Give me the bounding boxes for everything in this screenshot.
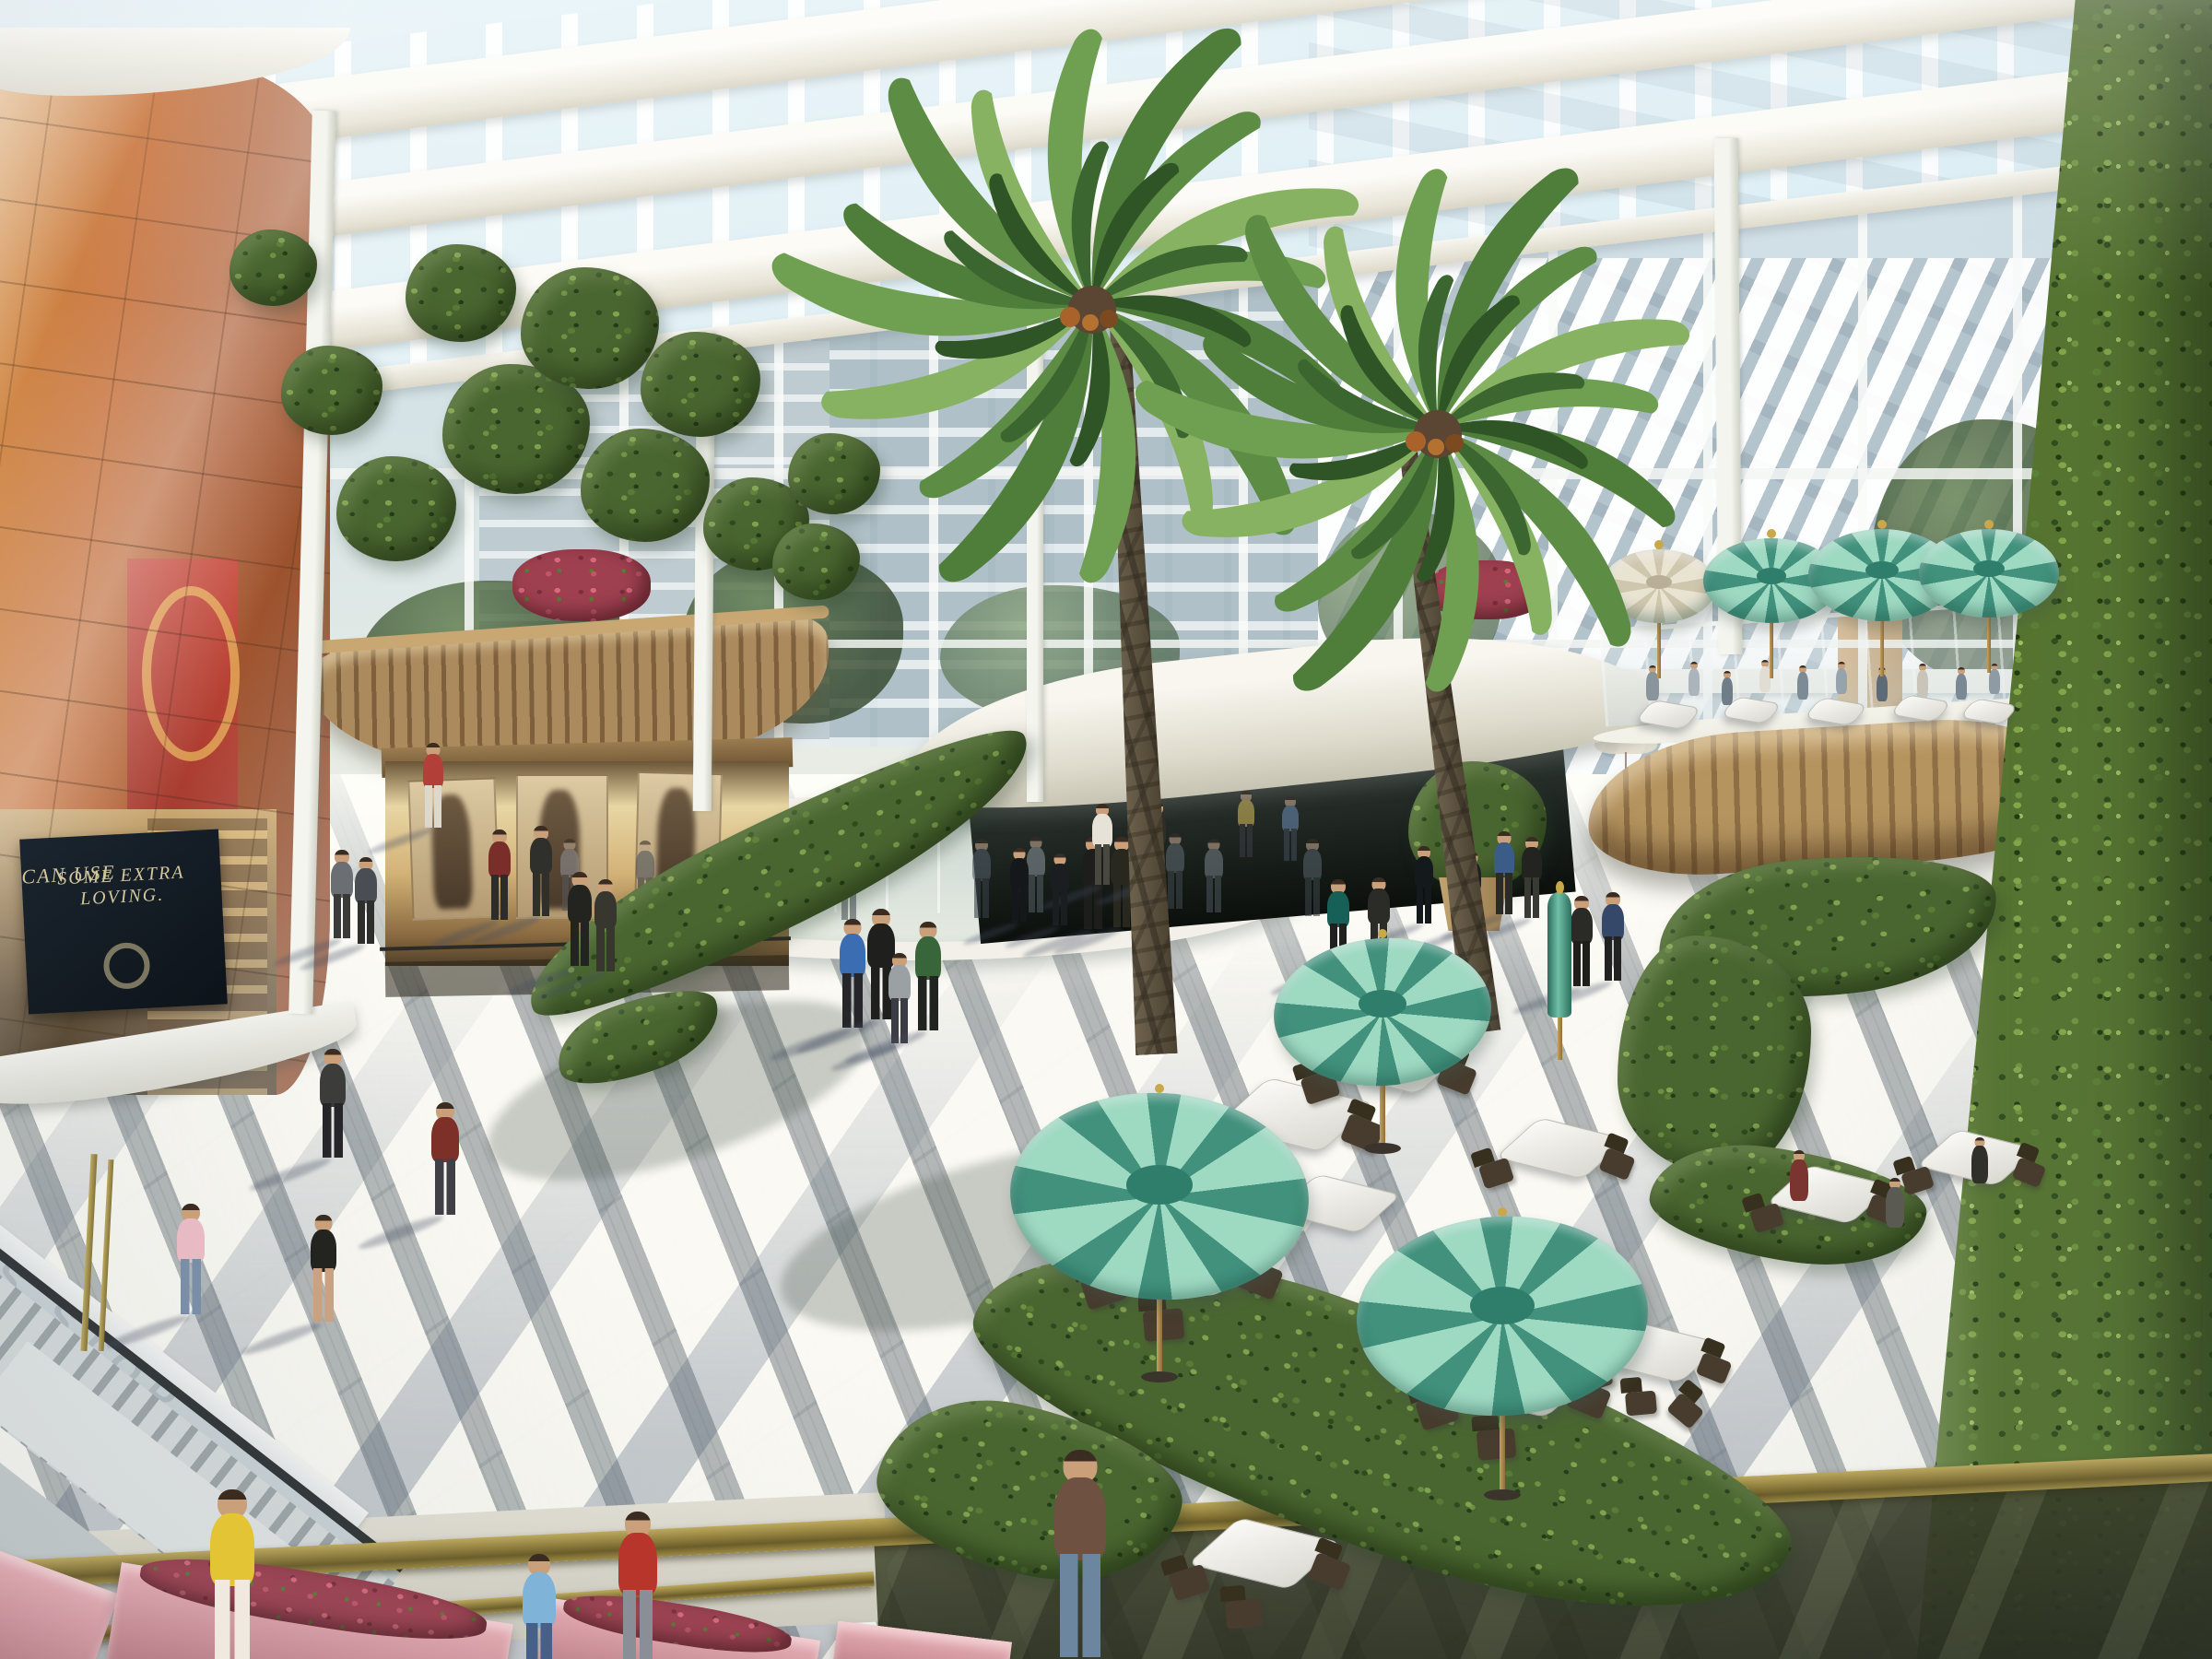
closed-umbrella [1547, 892, 1571, 1018]
chair-back [1620, 1377, 1642, 1394]
person-torso [431, 1117, 459, 1162]
person-legs [623, 1590, 653, 1659]
coconut-cluster [1060, 307, 1080, 327]
foreground-person [516, 1554, 563, 1659]
mall-atrium-rendering: CAN USE SOME EXTRA LOVING. S STOP [0, 0, 2212, 1659]
person-torso [1917, 670, 1929, 697]
coconut-cluster [1445, 434, 1464, 453]
person [1088, 804, 1116, 885]
umbrella-base [1364, 1143, 1401, 1154]
umbrella-base [1484, 1489, 1521, 1500]
ad-wreath-logo [102, 942, 151, 991]
person [172, 1204, 210, 1314]
seated-person [1954, 667, 1969, 710]
umbrella-finial [1155, 1084, 1164, 1093]
person-torso [311, 1230, 336, 1272]
person-legs [215, 1580, 250, 1659]
person-legs [1524, 877, 1540, 918]
person-torso [1238, 800, 1253, 827]
person-torso [1971, 1146, 1988, 1183]
person-legs [1060, 1554, 1100, 1658]
seated-person [1970, 1137, 1990, 1198]
person-torso [1602, 904, 1624, 939]
person [1490, 831, 1519, 914]
person-torso [1092, 814, 1112, 846]
cafe-chair [1143, 1308, 1185, 1342]
person-torso [488, 841, 511, 877]
umbrella-finial [1877, 520, 1887, 529]
person-legs [1305, 877, 1320, 916]
person [351, 857, 381, 944]
person-legs [181, 1259, 202, 1314]
background-person [969, 839, 995, 918]
person-legs [571, 919, 589, 966]
coconut-cluster [1428, 439, 1444, 455]
person-torso [1886, 1187, 1903, 1227]
closed-umbrella-pole [1558, 1018, 1562, 1060]
seated-person [1795, 665, 1810, 710]
person [910, 922, 947, 1030]
person-torso [618, 1533, 657, 1595]
person-torso [1797, 672, 1809, 700]
person [1007, 848, 1032, 922]
person-torso [888, 965, 911, 1001]
person-legs [596, 925, 614, 971]
person-torso [1051, 864, 1068, 892]
person-legs [533, 871, 549, 916]
background-person [1300, 839, 1326, 916]
person-legs [1095, 844, 1111, 885]
foreground-person [611, 1512, 665, 1659]
umbrella-finial [1378, 929, 1387, 938]
palm-crown [1106, 97, 1770, 760]
umbrella-cap [1470, 1287, 1535, 1324]
closed-umbrella-finial [1556, 881, 1564, 894]
person [485, 829, 515, 920]
person [1411, 846, 1438, 924]
person-torso [1327, 891, 1349, 926]
person-legs [1053, 889, 1066, 925]
chair-back [1471, 1415, 1499, 1431]
umbrella-cap [1865, 561, 1898, 579]
person-torso [1054, 1477, 1105, 1560]
person [427, 1102, 465, 1215]
person-legs [435, 1159, 456, 1215]
person [1598, 892, 1629, 981]
chair-back [1219, 1585, 1245, 1602]
person [306, 1215, 342, 1322]
person [590, 879, 621, 971]
person-torso [1877, 674, 1888, 701]
person-torso [1282, 806, 1298, 831]
person-torso [177, 1218, 205, 1263]
seated-person [1788, 1150, 1810, 1217]
seated-person [1884, 1178, 1906, 1242]
background-person [1202, 839, 1227, 912]
person-torso [1571, 908, 1593, 944]
umbrella-finial [1498, 1207, 1507, 1217]
person [1518, 837, 1546, 918]
person-torso [210, 1513, 254, 1585]
person-legs [358, 900, 374, 944]
cafe-chair [1225, 1598, 1263, 1629]
person-torso [1836, 668, 1848, 695]
person-torso [1415, 856, 1434, 888]
person-legs [1168, 871, 1182, 909]
person-torso [636, 851, 653, 880]
person-torso [1522, 847, 1542, 879]
person-legs [1605, 936, 1621, 981]
person [1045, 1450, 1116, 1657]
coconut-cluster [1406, 431, 1426, 452]
person-legs [1573, 941, 1590, 986]
person-torso [1010, 858, 1028, 888]
person-legs [323, 1103, 343, 1158]
person-legs [1284, 829, 1296, 861]
person-torso [972, 849, 992, 880]
cafe-chair [1625, 1391, 1657, 1417]
flowerbed [512, 549, 651, 621]
background-person [1235, 791, 1257, 857]
person-torso [1989, 669, 2000, 694]
person-legs [1240, 824, 1252, 857]
person-torso [1790, 1159, 1807, 1201]
ad-text-line2: SOME EXTRA LOVING. [21, 860, 222, 912]
person-legs [334, 894, 350, 938]
person [526, 826, 557, 916]
person-torso [1205, 849, 1222, 878]
person-torso [423, 754, 443, 788]
person-legs [313, 1268, 334, 1322]
person [419, 743, 448, 828]
umbrella-cap [1126, 1165, 1192, 1205]
person [1048, 853, 1073, 925]
person-torso [530, 838, 552, 874]
person-legs [918, 976, 938, 1030]
seated-person [1915, 664, 1930, 706]
person-torso [320, 1064, 347, 1107]
person-legs [1012, 885, 1026, 922]
person-legs [1206, 876, 1220, 912]
umbrella-cap [1973, 560, 2004, 577]
background-person [1279, 796, 1301, 861]
person-torso [1494, 842, 1514, 876]
person-torso [355, 868, 376, 903]
person-legs [425, 785, 441, 828]
person-torso [331, 862, 353, 897]
person-legs [1496, 873, 1512, 914]
person-torso [568, 885, 591, 923]
person-torso [1303, 849, 1323, 880]
person-torso [915, 936, 942, 980]
person-legs [1417, 885, 1431, 924]
person-torso [1368, 888, 1389, 924]
person-torso [594, 891, 617, 928]
person-legs [526, 1623, 553, 1659]
storefront-ad-sign: CAN USE SOME EXTRA LOVING. [19, 829, 228, 1014]
cafe-chair [1477, 1428, 1517, 1461]
person-torso [523, 1572, 557, 1628]
umbrella-finial [1984, 520, 1994, 529]
person-legs [974, 878, 989, 918]
person-legs [842, 973, 863, 1028]
seated-person [1834, 662, 1849, 704]
person-legs [491, 875, 508, 920]
person [314, 1049, 351, 1158]
coconut-cluster [1082, 314, 1099, 331]
foreground-person [202, 1489, 264, 1659]
person-torso [1956, 674, 1968, 700]
umbrella-base [1141, 1371, 1178, 1382]
